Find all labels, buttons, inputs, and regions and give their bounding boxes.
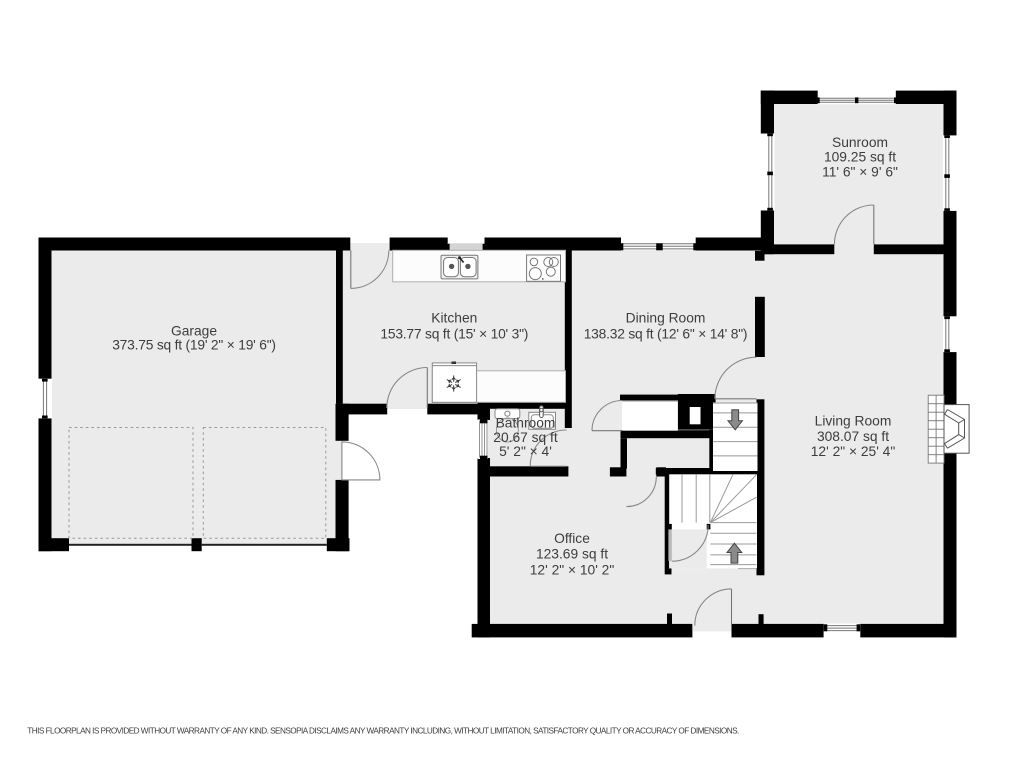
- svg-text:109.25 sq ft: 109.25 sq ft: [824, 150, 896, 165]
- svg-text:153.77 sq ft (15' × 10' 3"): 153.77 sq ft (15' × 10' 3"): [380, 327, 528, 342]
- svg-text:20.67 sq ft: 20.67 sq ft: [493, 430, 558, 445]
- svg-text:138.32 sq ft (12' 6" × 14' 8"): 138.32 sq ft (12' 6" × 14' 8"): [584, 327, 748, 342]
- svg-text:Garage: Garage: [171, 324, 217, 339]
- svg-text:Living Room: Living Room: [815, 414, 892, 429]
- svg-text:12' 2" × 25' 4": 12' 2" × 25' 4": [811, 444, 896, 459]
- svg-text:Sunroom: Sunroom: [832, 135, 888, 150]
- svg-text:Office: Office: [554, 531, 590, 546]
- svg-text:12' 2" × 10' 2": 12' 2" × 10' 2": [530, 563, 615, 578]
- svg-text:5' 2" × 4': 5' 2" × 4': [499, 444, 552, 459]
- svg-text:123.69 sq ft: 123.69 sq ft: [536, 547, 608, 562]
- svg-text:11' 6" × 9' 6": 11' 6" × 9' 6": [822, 165, 898, 180]
- svg-text:373.75 sq ft (19' 2" × 19' 6"): 373.75 sq ft (19' 2" × 19' 6"): [112, 338, 276, 353]
- svg-text:308.07 sq ft: 308.07 sq ft: [817, 429, 889, 444]
- svg-text:Kitchen: Kitchen: [431, 311, 477, 326]
- svg-text:Dining Room: Dining Room: [626, 311, 706, 326]
- svg-text:THIS FLOORPLAN IS PROVIDED WIT: THIS FLOORPLAN IS PROVIDED WITHOUT WARRA…: [27, 727, 739, 736]
- svg-text:Bathroom: Bathroom: [496, 416, 556, 431]
